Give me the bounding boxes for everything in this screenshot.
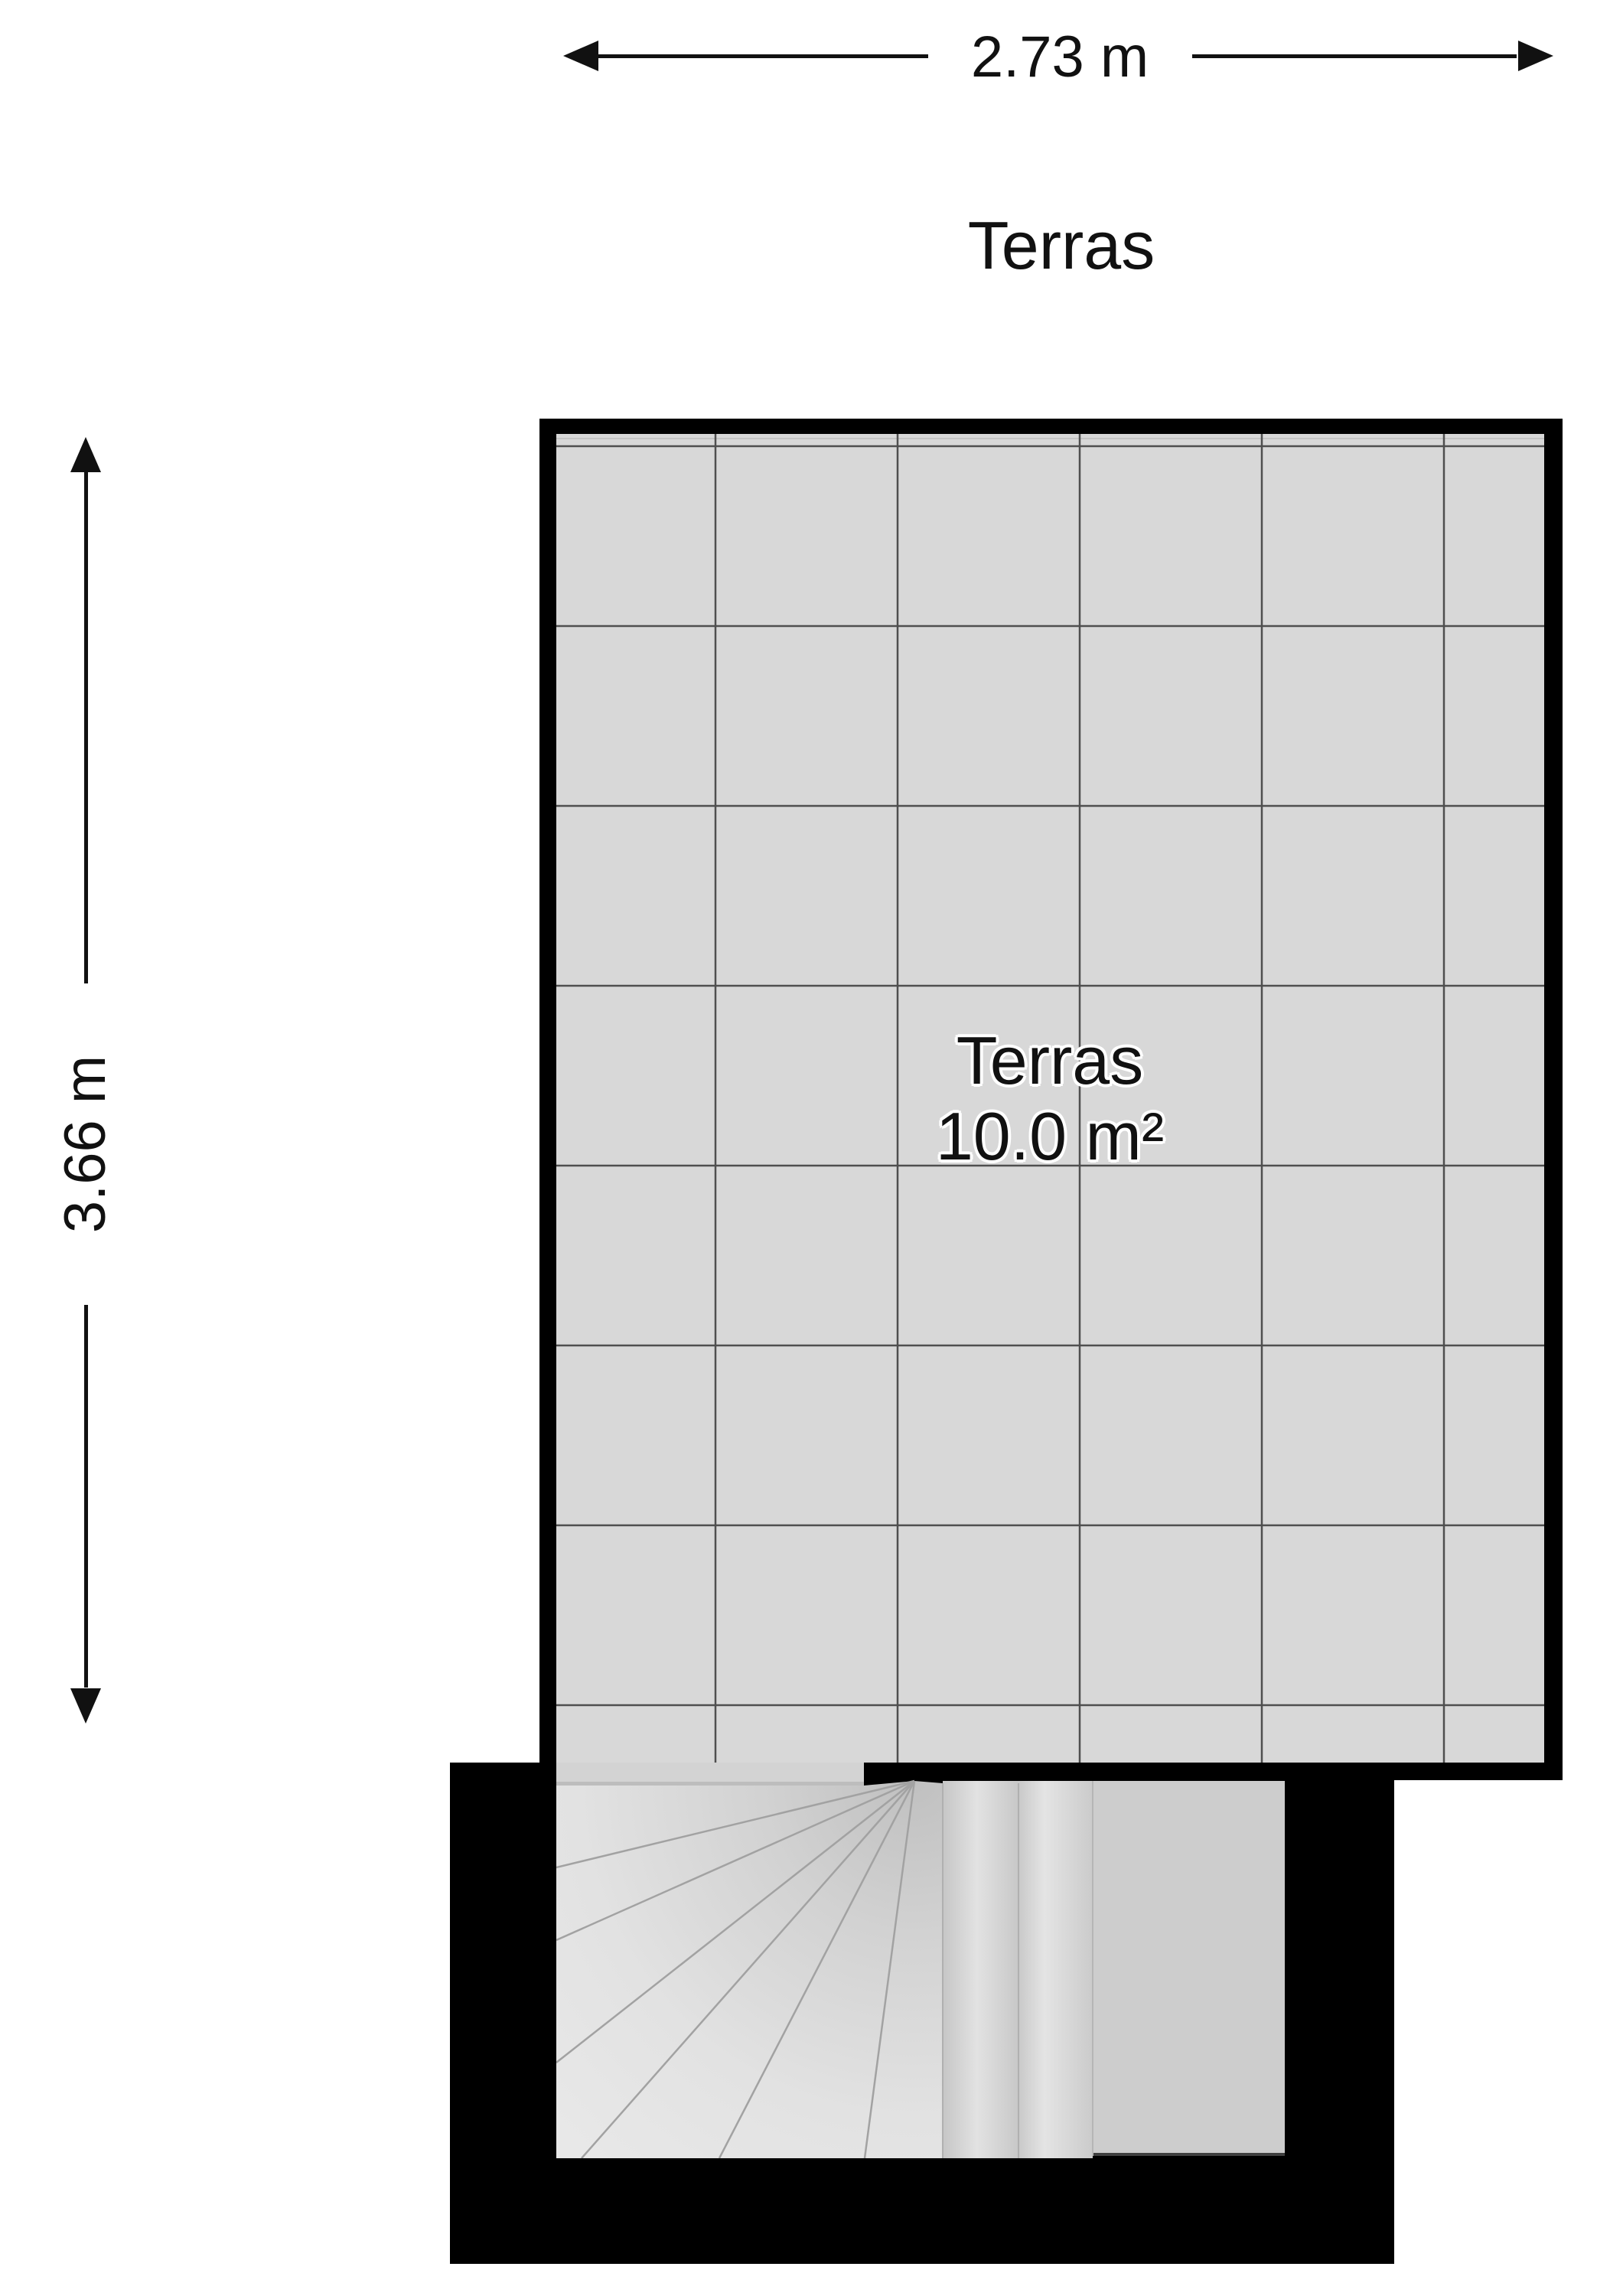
floor-plan-canvas: 2.73 m Terras 3.66 m bbox=[0, 0, 1623, 2296]
stair-tread bbox=[1018, 1781, 1093, 2158]
terrace-wall-left bbox=[539, 419, 556, 1780]
room-area: 10.0 m² bbox=[782, 1098, 1318, 1174]
dimension-line-right-segment bbox=[1192, 54, 1517, 58]
dimension-line-left-segment bbox=[594, 54, 928, 58]
stair-landing bbox=[1093, 1781, 1285, 2156]
arrow-up-icon bbox=[70, 437, 101, 472]
arrow-right-icon bbox=[1518, 41, 1553, 71]
room-name: Terras bbox=[782, 1022, 1318, 1098]
stair-landing-edge bbox=[1093, 2153, 1285, 2156]
arrow-down-icon bbox=[70, 1688, 101, 1724]
dimension-line-bottom-segment bbox=[84, 1305, 88, 1688]
plan-title: Terras bbox=[832, 207, 1291, 283]
stair-tread bbox=[943, 1781, 1018, 2158]
dimension-line-top-segment bbox=[84, 471, 88, 983]
staircase bbox=[556, 1763, 1285, 2158]
terrace-wall-right bbox=[1544, 419, 1563, 1780]
width-dimension-label: 2.73 m bbox=[945, 23, 1175, 92]
stair-top-step bbox=[556, 1763, 864, 1783]
room-label: Terras 10.0 m² bbox=[782, 1022, 1318, 1174]
stair-top-step-shadow bbox=[556, 1782, 864, 1786]
